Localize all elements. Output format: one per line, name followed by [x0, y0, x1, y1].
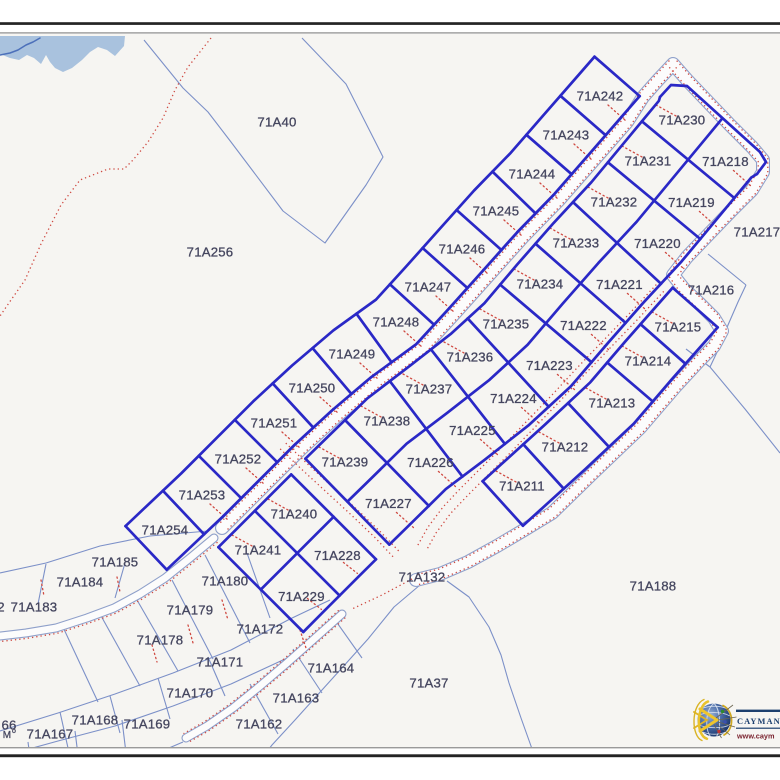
svg-text:71A164: 71A164	[308, 661, 355, 676]
svg-text:71A225: 71A225	[449, 423, 496, 438]
svg-text:71A229: 71A229	[278, 589, 325, 604]
svg-text:71A163: 71A163	[273, 691, 320, 706]
svg-text:71A233: 71A233	[553, 236, 600, 251]
svg-text:71A238: 71A238	[364, 414, 411, 429]
svg-text:71A216: 71A216	[688, 283, 735, 298]
svg-text:71A226: 71A226	[407, 455, 454, 470]
svg-text:71A217: 71A217	[734, 225, 780, 240]
svg-text:71A214: 71A214	[625, 354, 672, 369]
svg-text:71A40: 71A40	[257, 115, 296, 130]
svg-text:71A231: 71A231	[625, 154, 672, 169]
svg-text:71A252: 71A252	[215, 452, 262, 467]
svg-text:71A212: 71A212	[542, 440, 589, 455]
svg-text:71A172: 71A172	[237, 622, 284, 637]
svg-text:2: 2	[0, 600, 5, 615]
svg-text:71A256: 71A256	[187, 245, 234, 260]
svg-text:71A235: 71A235	[483, 317, 530, 332]
svg-text:71A228: 71A228	[314, 548, 361, 563]
svg-text:71A169: 71A169	[124, 717, 171, 732]
svg-text:71A37: 71A37	[409, 676, 448, 691]
svg-text:71A239: 71A239	[322, 455, 369, 470]
svg-text:71A237: 71A237	[406, 382, 453, 397]
svg-text:71A171: 71A171	[197, 655, 244, 670]
svg-text:71A241: 71A241	[235, 543, 282, 558]
svg-text:71A184: 71A184	[57, 575, 104, 590]
svg-text:71A236: 71A236	[447, 350, 494, 365]
svg-text:71A219: 71A219	[668, 195, 715, 210]
svg-text:71A227: 71A227	[365, 496, 412, 511]
svg-text:71A248: 71A248	[373, 315, 420, 330]
svg-text:71A218: 71A218	[702, 154, 749, 169]
svg-text:71A188: 71A188	[630, 579, 677, 594]
svg-text:71A243: 71A243	[543, 128, 590, 143]
svg-text:71A230: 71A230	[659, 113, 706, 128]
svg-text:71A234: 71A234	[517, 277, 564, 292]
svg-text:71A221: 71A221	[596, 277, 643, 292]
svg-text:71A254: 71A254	[142, 523, 189, 538]
svg-text:71A250: 71A250	[289, 381, 336, 396]
svg-text:71A246: 71A246	[439, 242, 486, 257]
svg-text:71A178: 71A178	[137, 633, 184, 648]
svg-text:71A247: 71A247	[405, 280, 452, 295]
svg-text:71A244: 71A244	[509, 167, 556, 182]
svg-text:71A162: 71A162	[236, 717, 283, 732]
svg-text:CAYMAN I: CAYMAN I	[737, 717, 780, 726]
svg-text:71A179: 71A179	[167, 603, 214, 618]
svg-text:71A132: 71A132	[399, 570, 446, 585]
svg-text:www.caym: www.caym	[736, 732, 775, 741]
svg-text:71A220: 71A220	[634, 236, 681, 251]
svg-text:71A183: 71A183	[11, 600, 58, 615]
svg-text:71A242: 71A242	[577, 89, 624, 104]
svg-text:71A253: 71A253	[179, 488, 226, 503]
svg-text:71A249: 71A249	[329, 347, 376, 362]
svg-text:71A245: 71A245	[473, 204, 520, 219]
svg-text:M: M	[3, 730, 12, 741]
svg-text:71A232: 71A232	[591, 195, 638, 210]
svg-text:71A168: 71A168	[72, 713, 119, 728]
svg-text:o: o	[12, 728, 16, 735]
svg-text:71A222: 71A222	[560, 318, 607, 333]
svg-text:71A167: 71A167	[27, 727, 74, 742]
svg-text:71A224: 71A224	[490, 391, 537, 406]
svg-text:71A170: 71A170	[167, 686, 214, 701]
svg-text:71A180: 71A180	[202, 574, 249, 589]
svg-text:71A215: 71A215	[655, 320, 702, 335]
svg-text:71A211: 71A211	[499, 479, 545, 494]
svg-text:71A223: 71A223	[526, 358, 573, 373]
svg-text:71A213: 71A213	[589, 396, 636, 411]
svg-text:71A251: 71A251	[251, 416, 298, 431]
svg-text:71A185: 71A185	[92, 555, 139, 570]
svg-text:71A240: 71A240	[271, 507, 318, 522]
